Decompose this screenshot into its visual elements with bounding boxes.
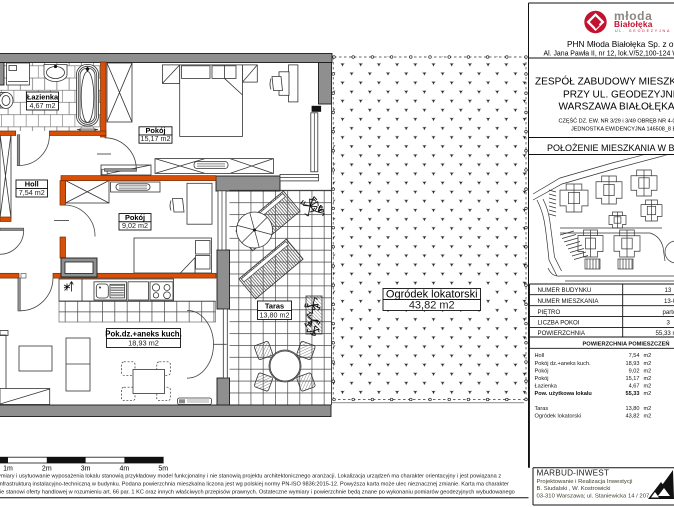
- svg-text:UL. GEODEZYJNA: UL. GEODEZYJNA: [615, 29, 671, 33]
- svg-text:4m: 4m: [120, 466, 130, 473]
- svg-text:POŁOŻENIE MIESZKANIA W BUDYNKU: POŁOŻENIE MIESZKANIA W BUDYNKU: [547, 143, 674, 153]
- svg-text:55,33: 55,33: [626, 391, 640, 397]
- svg-text:m2: m2: [644, 376, 652, 382]
- svg-text:JEDNOSTKA EWIDENCYJNA 146508_8: JEDNOSTKA EWIDENCYJNA 146508_8 BIAŁOŁĘKA: [571, 127, 674, 133]
- svg-text:Pokój: Pokój: [535, 368, 549, 374]
- svg-text:9,02 m2: 9,02 m2: [122, 221, 148, 230]
- svg-text:5m: 5m: [158, 466, 168, 473]
- svg-text:m2: m2: [644, 368, 652, 374]
- svg-text:18,93 m2: 18,93 m2: [128, 339, 159, 348]
- svg-text:43,82 m2: 43,82 m2: [409, 300, 455, 312]
- svg-text:wymiary i usytuowanie wyposaże: wymiary i usytuowanie wyposażenia lokalu…: [0, 474, 501, 480]
- svg-text:13,80: 13,80: [626, 406, 640, 412]
- svg-text:POWIERZCHNIA POMIESZCZEŃ: POWIERZCHNIA POMIESZCZEŃ: [583, 340, 670, 348]
- svg-text:Białołęka: Białołęka: [614, 19, 653, 29]
- svg-text:4,67: 4,67: [629, 384, 640, 390]
- svg-text:Projektowanie i Realizacja Inw: Projektowanie i Realizacja Inwestycji: [537, 479, 633, 485]
- svg-text:Pokój: Pokój: [535, 376, 549, 382]
- svg-text:Holl: Holl: [535, 353, 545, 359]
- svg-text:m2: m2: [644, 353, 652, 359]
- svg-text:7,54 m2: 7,54 m2: [19, 188, 45, 197]
- svg-text:m2: m2: [644, 384, 652, 390]
- svg-text:m2: m2: [644, 414, 652, 420]
- svg-text:PRZY UL. GEODEZYJNEJ: PRZY UL. GEODEZYJNEJ: [563, 90, 674, 101]
- svg-text:7,54: 7,54: [629, 353, 640, 359]
- svg-text:MARBUD-INWEST: MARBUD-INWEST: [537, 469, 610, 478]
- svg-text:Pok.dz.+aneks kuch.: Pok.dz.+aneks kuch.: [105, 330, 181, 339]
- svg-text:i nie stanowi oferty handlowej: i nie stanowi oferty handlowej w rozumie…: [0, 490, 515, 496]
- svg-text:13: 13: [665, 287, 672, 294]
- svg-text:43,82: 43,82: [626, 414, 640, 420]
- svg-text:13,80 m2: 13,80 m2: [260, 311, 290, 320]
- svg-text:NUMER MIESZKANIA: NUMER MIESZKANIA: [538, 298, 600, 305]
- svg-text:Pokój dz.+aneks kuch.: Pokój dz.+aneks kuch.: [535, 361, 592, 367]
- svg-text:3m: 3m: [81, 466, 91, 473]
- svg-text:55,33 m2: 55,33 m2: [656, 330, 674, 337]
- svg-text:15,17 m2: 15,17 m2: [141, 134, 171, 143]
- svg-text:Ogródek lokatorski: Ogródek lokatorski: [535, 414, 582, 420]
- svg-text:z infrastrukturą instalacyjno-: z infrastrukturą instalacyjno-techniczną…: [0, 482, 509, 488]
- svg-text:Pow. użytkowa lokalu: Pow. użytkowa lokalu: [535, 391, 593, 397]
- svg-text:WARSZAWA BIAŁOŁĘKA: WARSZAWA BIAŁOŁĘKA: [559, 101, 674, 112]
- svg-text:Al. Jana Pawła II, nr 12, lok.: Al. Jana Pawła II, nr 12, lok.V/52,100-1…: [544, 51, 674, 58]
- svg-text:m2: m2: [644, 406, 652, 412]
- svg-text:03-310 Warszawa; ul. Staniewic: 03-310 Warszawa; ul. Staniewicka 14 / 20…: [537, 494, 650, 500]
- svg-text:B. Siudalski , W. Kostrowicki: B. Siudalski , W. Kostrowicki: [537, 486, 611, 492]
- svg-text:1m: 1m: [3, 466, 13, 473]
- svg-text:15,17: 15,17: [626, 376, 640, 382]
- svg-text:Łazienka: Łazienka: [535, 384, 558, 390]
- svg-text:Taras: Taras: [535, 406, 549, 412]
- svg-text:2m: 2m: [42, 466, 52, 473]
- svg-text:POWIERZCHNIA: POWIERZCHNIA: [538, 330, 586, 337]
- svg-text:PIĘTRO: PIĘTRO: [538, 309, 561, 316]
- svg-text:m2: m2: [644, 391, 652, 397]
- svg-text:NUMER BUDYNKU: NUMER BUDYNKU: [538, 287, 592, 294]
- svg-text:Taras: Taras: [265, 302, 284, 311]
- svg-text:LICZBA POKOI: LICZBA POKOI: [538, 320, 580, 327]
- svg-text:13-03: 13-03: [664, 298, 674, 305]
- svg-text:PHN Młoda Białołęka Sp. z o.o.: PHN Młoda Białołęka Sp. z o.o.: [567, 39, 674, 49]
- svg-text:ZESPÓŁ ZABUDOWY MIESZKANIOWEJ: ZESPÓŁ ZABUDOWY MIESZKANIOWEJ: [535, 75, 674, 88]
- svg-text:CZĘŚĆ DZ. EW. NR 3/29 i 3/49 O: CZĘŚĆ DZ. EW. NR 3/29 i 3/49 OBRĘB NR 4-…: [559, 117, 674, 125]
- svg-text:18,93: 18,93: [626, 361, 640, 367]
- svg-text:4,67 m2: 4,67 m2: [30, 101, 56, 110]
- svg-text:m2: m2: [644, 361, 652, 367]
- svg-text:parter: parter: [663, 309, 674, 316]
- svg-text:9,02: 9,02: [629, 368, 640, 374]
